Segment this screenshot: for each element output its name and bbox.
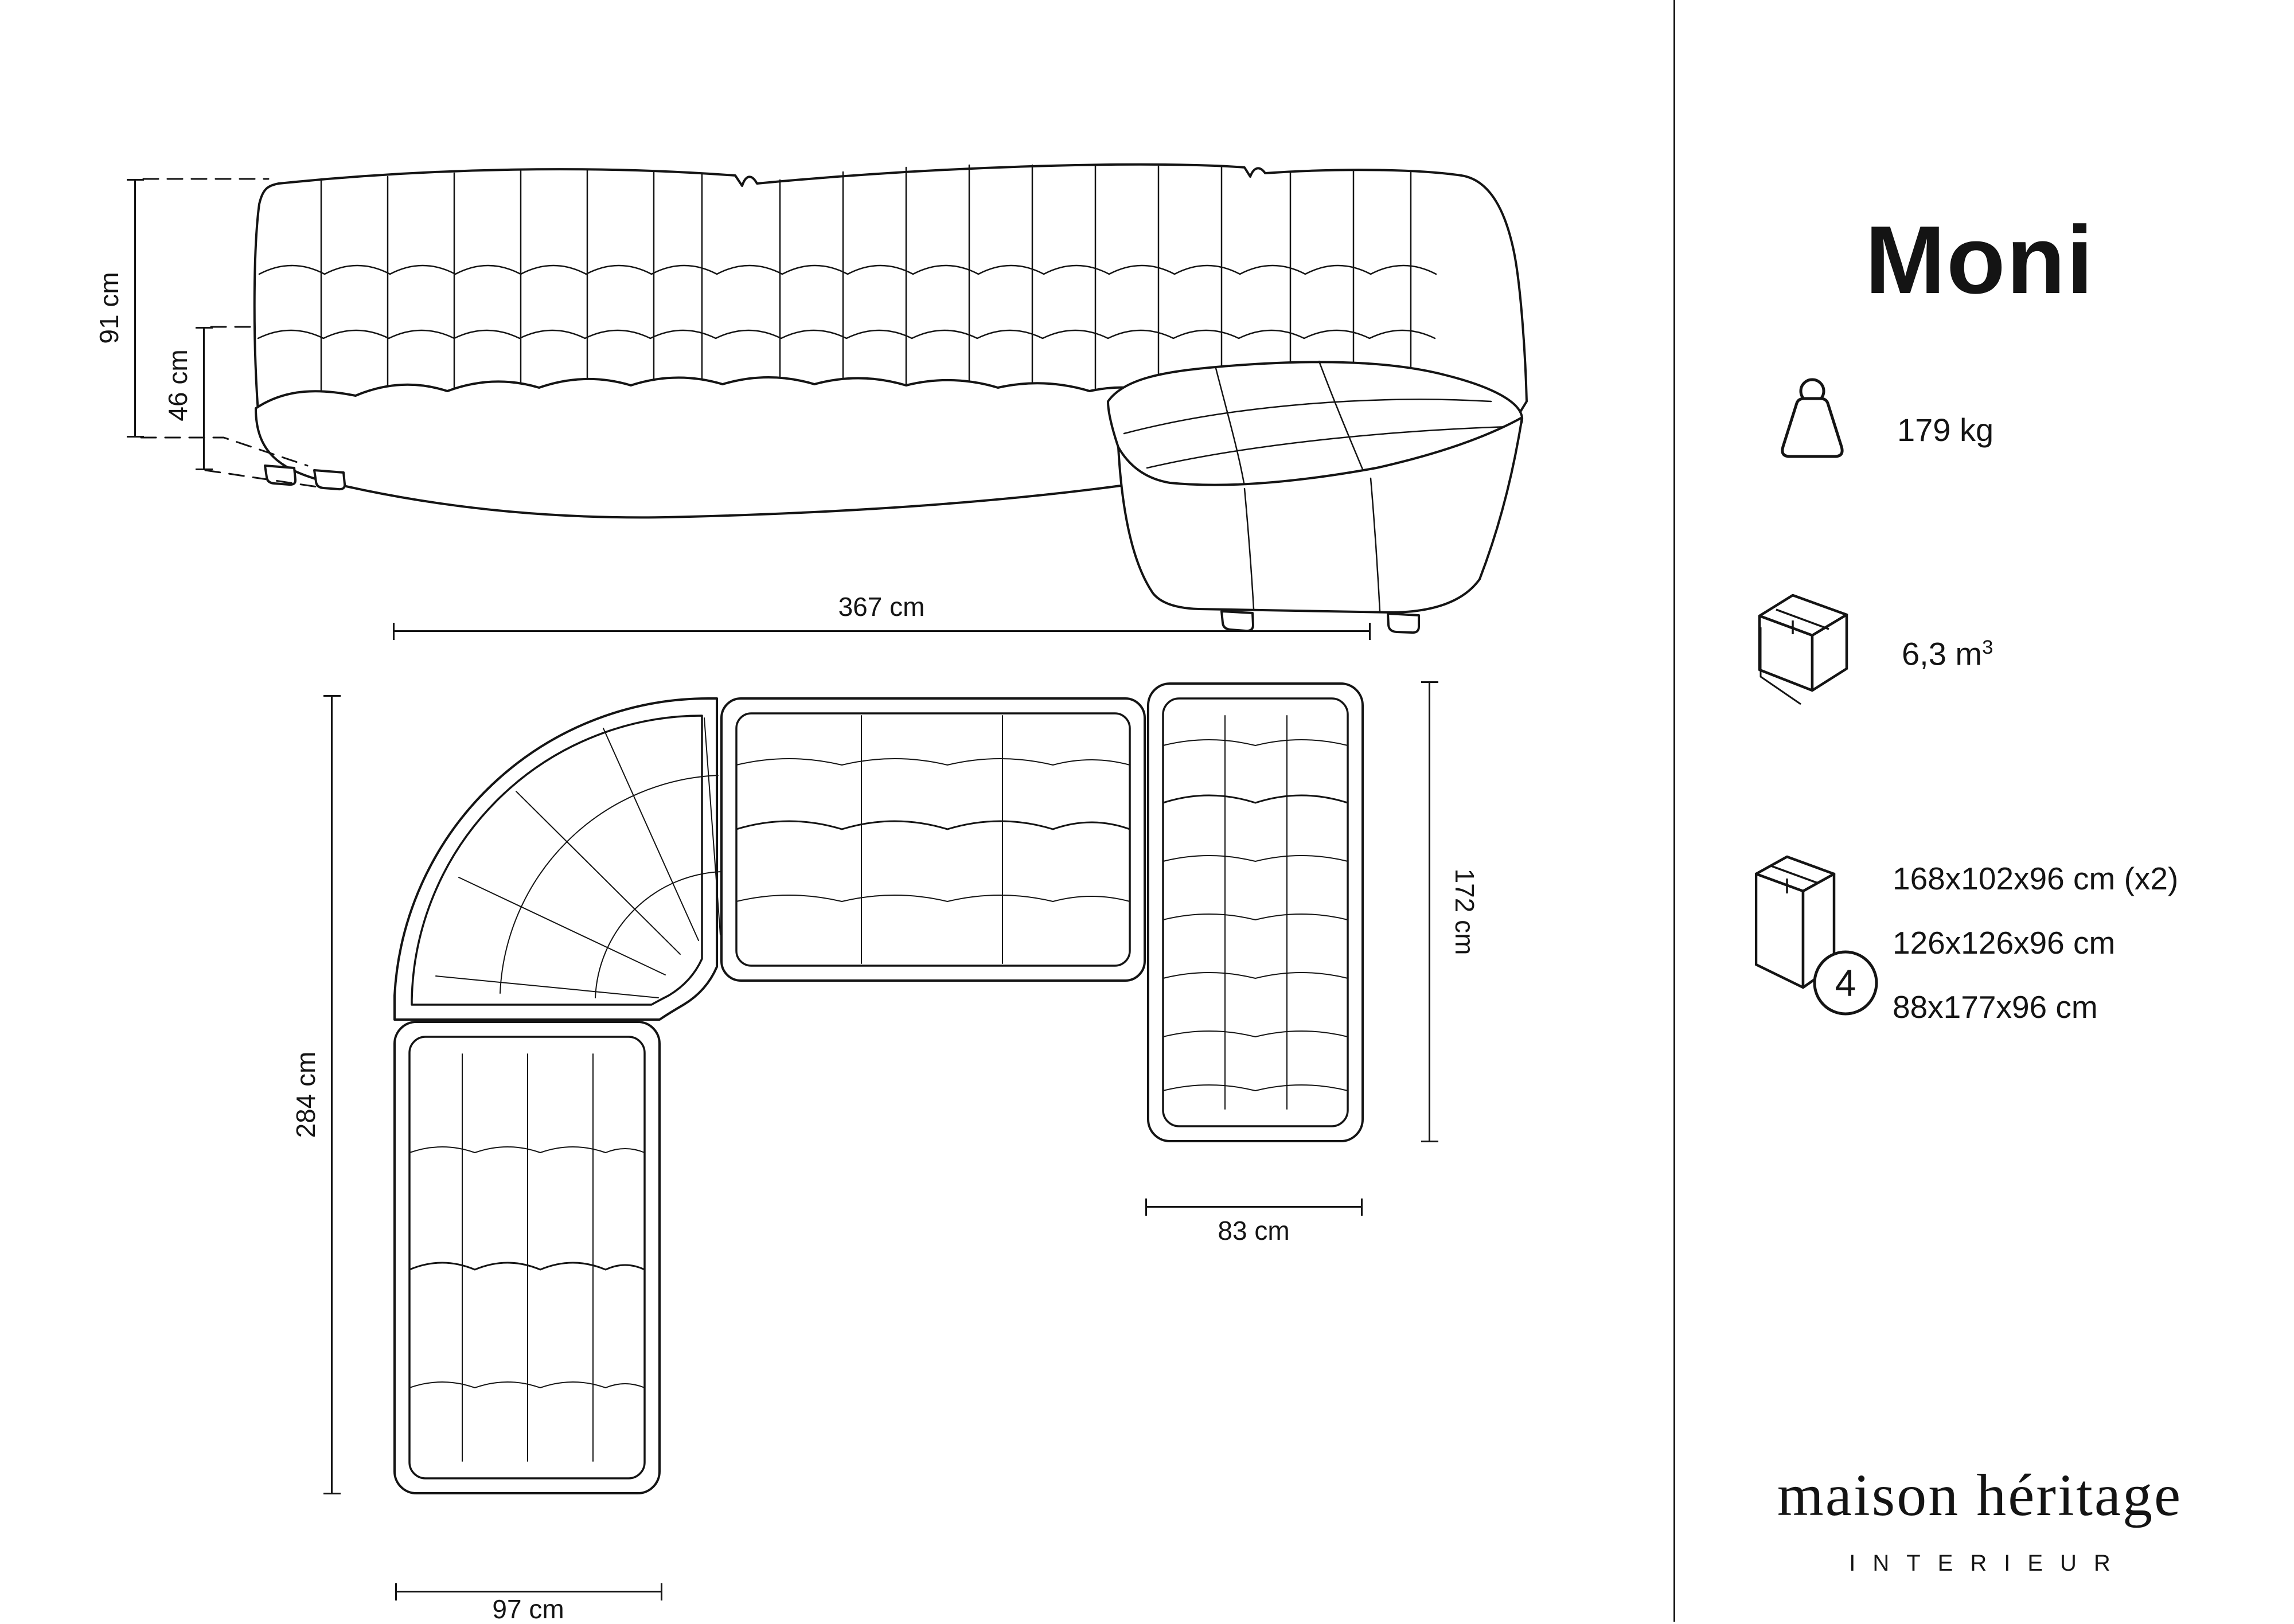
product-title: Moni: [1865, 212, 2094, 308]
weight-icon: [1771, 376, 1857, 464]
dim-total-depth-label: 284 cm: [292, 1052, 319, 1138]
package-dimension-line: 88x177x96 cm: [1893, 975, 2178, 1039]
package-count: 4: [1835, 962, 1856, 1004]
dim-chaise-width-label: 83 cm: [1218, 1217, 1289, 1244]
brand-logo: maison héritage: [1777, 1466, 2182, 1525]
top-view-drawing: [395, 684, 1363, 1493]
dim-chaise-length-label: 172 cm: [1452, 869, 1478, 955]
dim-total-depth-line: [331, 695, 333, 1494]
dim-total-height-label: 91 cm: [96, 272, 122, 343]
volume-value: 6,3 m3: [1902, 638, 1993, 670]
dim-total-width-line: [393, 630, 1371, 632]
dim-total-width-label: 367 cm: [838, 594, 925, 620]
brand-tagline: INTERIEUR: [1832, 1552, 2128, 1575]
side-view-drawing: [141, 165, 1527, 633]
dim-total-height-line: [134, 179, 136, 438]
dim-chaise-length-line: [1429, 681, 1430, 1142]
sofa-technical-drawing: [0, 0, 1675, 1622]
dim-arm-width-label: 97 cm: [492, 1596, 564, 1622]
package-dimension-line: 168x102x96 cm (x2): [1893, 846, 2178, 911]
volume-exponent: 3: [1982, 637, 1993, 658]
dim-chaise-width-line: [1145, 1206, 1363, 1208]
package-dimensions: 168x102x96 cm (x2) 126x126x96 cm 88x177x…: [1893, 846, 2178, 1039]
dim-arm-width-line: [395, 1591, 662, 1592]
dim-seat-height-label: 46 cm: [165, 349, 191, 421]
volume-number: 6,3 m: [1902, 636, 1982, 672]
panel-divider: [1673, 0, 1675, 1622]
volume-box-icon: [1756, 592, 1871, 715]
weight-value: 179 kg: [1897, 414, 1993, 446]
dim-seat-height-line: [203, 327, 205, 470]
package-count-icon: 4: [1755, 852, 1884, 1027]
package-dimension-line: 126x126x96 cm: [1893, 911, 2178, 975]
